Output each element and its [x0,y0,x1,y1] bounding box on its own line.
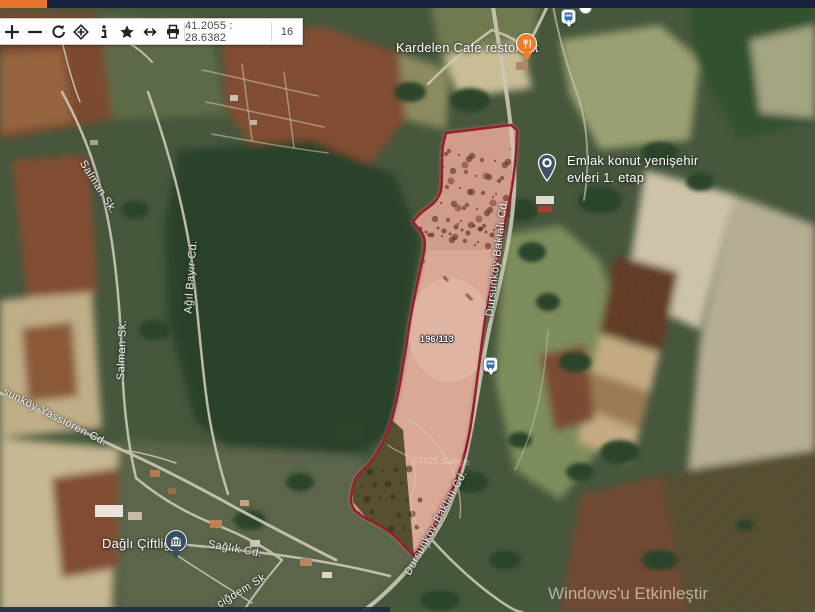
bus-stop-marker[interactable] [561,9,576,24]
zoom-in-button[interactable] [0,19,23,44]
zoom-out-button[interactable] [23,19,46,44]
farm-building-icon [169,534,183,548]
browser-tab-fragment [0,0,47,8]
info-button[interactable] [92,19,115,44]
map-toolbar: 41.2055 : 28.6382 16 [0,18,303,45]
double-arrow-icon [142,24,158,40]
farm-marker[interactable] [165,530,187,552]
crosshair-icon [73,24,89,40]
print-button[interactable] [161,19,184,44]
locate-button[interactable] [69,19,92,44]
zoom-level-display: 16 [272,19,302,44]
info-icon [96,24,112,40]
road-label-salman-lower: Salman Sk. [115,320,129,381]
top-window-bar [0,0,815,8]
farm-label: Dağlı Çiftliği [102,536,174,551]
estate-marker[interactable] [536,152,558,187]
map-pin-icon [536,152,558,182]
map-attribution: ©2025 Google [412,455,471,467]
windows-activation-watermark: Windows'u Etkinleştir [548,584,708,604]
taskbar-fragment [0,607,390,612]
star-icon [119,24,135,40]
bus-stop-marker[interactable] [483,357,498,372]
map-application-window: 41.2055 : 28.6382 16 Kardelen Cafe resto… [0,0,815,612]
satellite-map[interactable] [0,0,815,612]
restaurant-icon [521,38,533,50]
parcel-number-label: 196/113 [420,334,454,344]
estate-label-line2: evleri 1. etap [567,169,698,186]
minus-icon [27,24,43,40]
cafe-marker[interactable] [516,33,537,54]
coordinates-display: 41.2055 : 28.6382 [185,19,271,44]
measure-button[interactable] [138,19,161,44]
estate-label-line1: Emlak konut yenişehir [567,152,698,169]
bus-icon [486,360,495,370]
bus-icon [564,12,573,22]
refresh-button[interactable] [46,19,69,44]
estate-label: Emlak konut yenişehir evleri 1. etap [567,152,698,186]
favorite-button[interactable] [115,19,138,44]
plus-icon [4,24,20,40]
refresh-icon [50,24,66,40]
printer-icon [165,24,181,40]
